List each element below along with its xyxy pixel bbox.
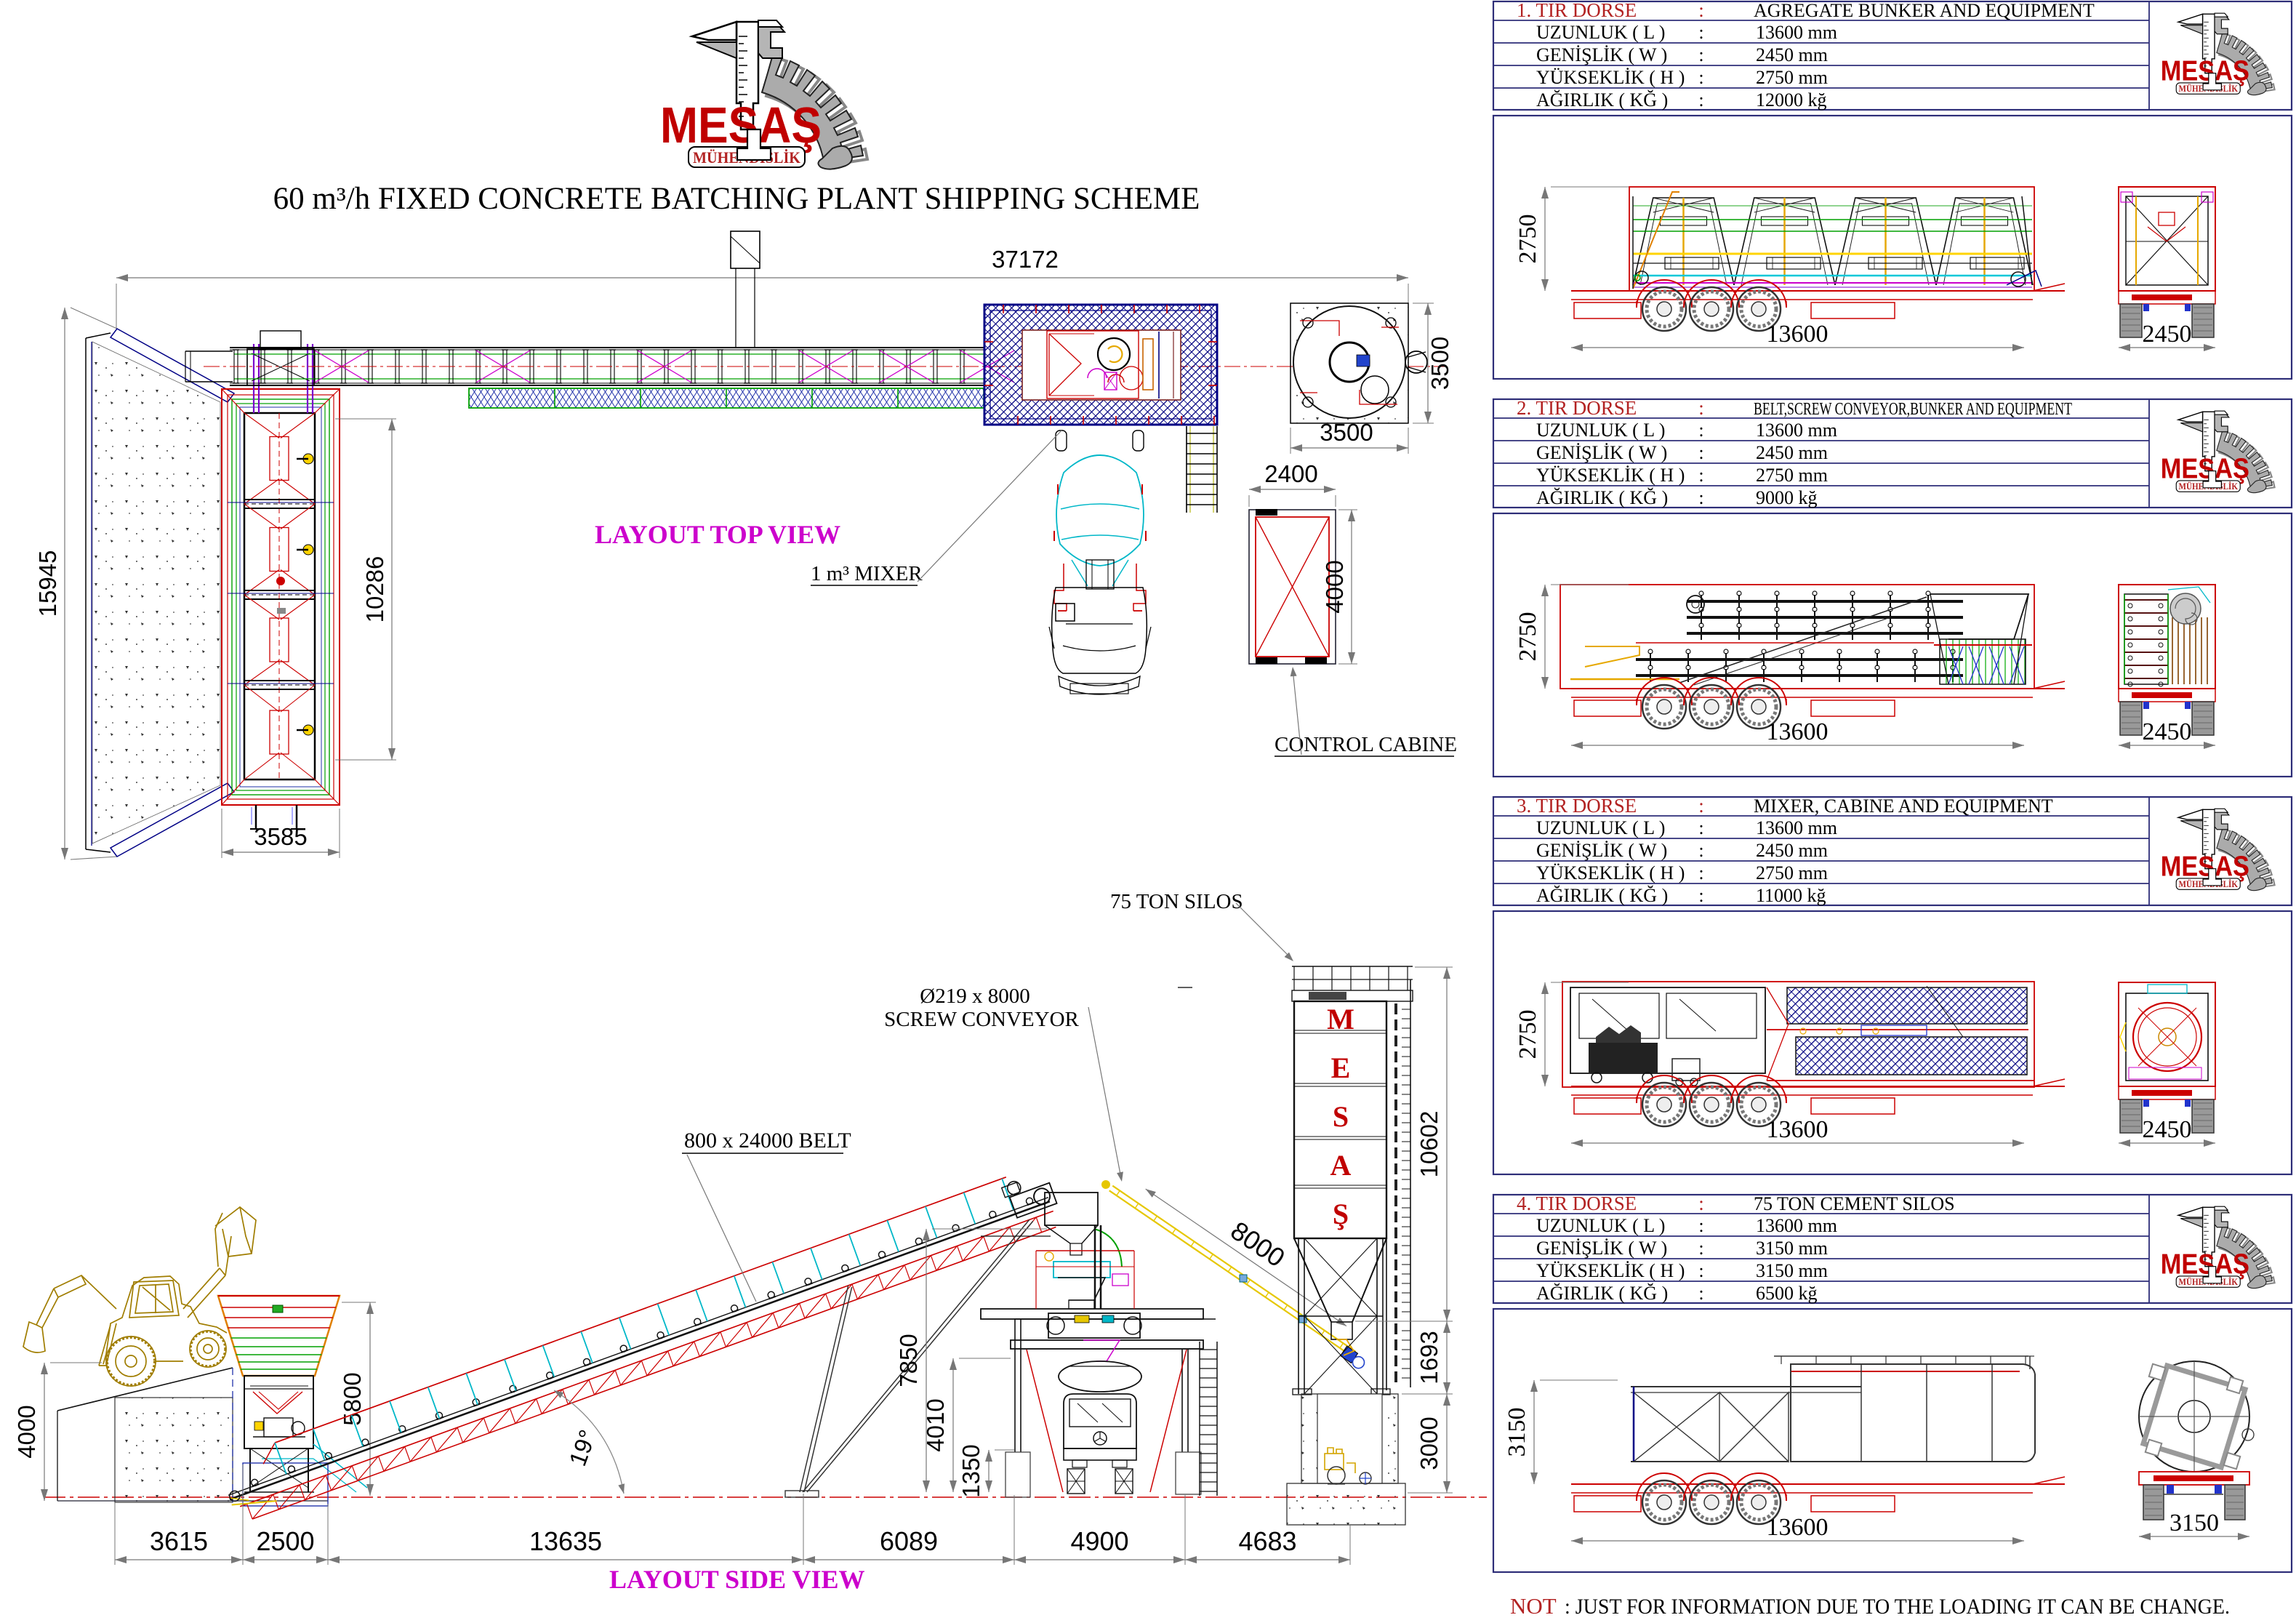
svg-text:7850: 7850 <box>895 1334 922 1387</box>
svg-text:2450 mm: 2450 mm <box>1756 840 1828 861</box>
svg-text:2500: 2500 <box>256 1526 314 1556</box>
svg-text:UZUNLUK ( L ): UZUNLUK ( L ) <box>1536 1215 1665 1236</box>
svg-text:AĞIRLIK ( KĞ ): AĞIRLIK ( KĞ ) <box>1536 89 1668 111</box>
svg-text:MESAŞ: MESAŞ <box>2161 454 2249 485</box>
svg-text:GENİŞLİK ( W ): GENİŞLİK ( W ) <box>1536 840 1667 861</box>
svg-text:GENİŞLİK ( W ): GENİŞLİK ( W ) <box>1536 1238 1667 1259</box>
svg-text:Ş: Ş <box>1333 1198 1349 1230</box>
svg-text:10602: 10602 <box>1416 1111 1442 1178</box>
svg-text:A: A <box>1330 1149 1352 1182</box>
svg-text:13600 mm: 13600 mm <box>1756 1215 1837 1236</box>
svg-text:15945: 15945 <box>34 550 61 617</box>
svg-text:3. TIR DORSE: 3. TIR DORSE <box>1517 795 1637 817</box>
svg-text:75 TON CEMENT SILOS: 75 TON CEMENT SILOS <box>1754 1193 1955 1214</box>
svg-text:4000: 4000 <box>1321 560 1348 613</box>
svg-text:13600 mm: 13600 mm <box>1756 22 1837 43</box>
svg-text::: : <box>1698 862 1703 883</box>
svg-text:YÜKSEKLİK ( H ): YÜKSEKLİK ( H ) <box>1536 1260 1685 1281</box>
svg-text:13600 mm: 13600 mm <box>1756 817 1837 838</box>
svg-text:YÜKSEKLİK ( H ): YÜKSEKLİK ( H ) <box>1536 67 1685 88</box>
svg-text:4. TIR DORSE: 4. TIR DORSE <box>1517 1193 1637 1214</box>
svg-text:2450 mm: 2450 mm <box>1756 442 1828 463</box>
svg-text:2. TIR DORSE: 2. TIR DORSE <box>1517 397 1637 419</box>
svg-text:S: S <box>1333 1100 1349 1133</box>
svg-text:13600 mm: 13600 mm <box>1756 420 1837 441</box>
svg-text:3615: 3615 <box>150 1526 208 1556</box>
svg-text:4900: 4900 <box>1070 1526 1128 1556</box>
svg-text::: : <box>1698 442 1703 463</box>
svg-text:AĞIRLIK ( KĞ ): AĞIRLIK ( KĞ ) <box>1536 487 1668 508</box>
svg-text:YÜKSEKLİK ( H ): YÜKSEKLİK ( H ) <box>1536 465 1685 486</box>
svg-text:2750 mm: 2750 mm <box>1756 465 1828 486</box>
svg-text::: : <box>1698 1260 1703 1281</box>
svg-text:800 x 24000 BELT: 800 x 24000 BELT <box>684 1129 851 1153</box>
svg-text:AGREGATE BUNKER AND EQUIPMENT: AGREGATE BUNKER AND EQUIPMENT <box>1754 0 2095 21</box>
svg-text:13600: 13600 <box>1767 321 1829 348</box>
svg-text:2750: 2750 <box>1514 612 1541 662</box>
svg-text:13600: 13600 <box>1767 718 1829 745</box>
svg-text:3500: 3500 <box>1320 419 1373 446</box>
svg-text:4683: 4683 <box>1238 1526 1296 1556</box>
svg-text:YÜKSEKLİK ( H ): YÜKSEKLİK ( H ) <box>1536 862 1685 883</box>
svg-text:3000: 3000 <box>1416 1416 1442 1470</box>
svg-text:UZUNLUK ( L ): UZUNLUK ( L ) <box>1536 22 1665 43</box>
svg-text:13600: 13600 <box>1767 1514 1829 1541</box>
svg-text:13600: 13600 <box>1767 1116 1829 1143</box>
svg-text::: : <box>1698 817 1703 838</box>
svg-text:9000 kğ: 9000 kğ <box>1756 487 1818 508</box>
svg-text:4000: 4000 <box>13 1405 40 1458</box>
svg-text:NOT: NOT <box>1510 1593 1557 1619</box>
svg-text:3150: 3150 <box>2169 1510 2219 1536</box>
svg-text::: : <box>1698 0 1704 21</box>
svg-text::: : <box>1698 67 1703 88</box>
svg-text:2450: 2450 <box>2143 718 2192 745</box>
svg-text:6089: 6089 <box>880 1526 938 1556</box>
svg-text::: : <box>1698 1238 1703 1259</box>
svg-text:BELT,SCREW CONVEYOR,BUNKER AND: BELT,SCREW CONVEYOR,BUNKER AND EQUIPMENT <box>1754 400 2072 419</box>
svg-text:1350: 1350 <box>958 1444 984 1497</box>
svg-text:2750 mm: 2750 mm <box>1756 862 1828 883</box>
svg-text:LAYOUT TOP VIEW: LAYOUT TOP VIEW <box>595 520 840 549</box>
svg-text::: : <box>1698 487 1703 508</box>
svg-text::: : <box>1698 420 1703 441</box>
svg-text::: : <box>1698 44 1703 65</box>
svg-text:UZUNLUK ( L ): UZUNLUK ( L ) <box>1536 420 1665 441</box>
svg-text::: : <box>1698 1193 1704 1214</box>
svg-text:2450: 2450 <box>2143 1116 2192 1143</box>
svg-text:11000 kğ: 11000 kğ <box>1756 885 1826 906</box>
svg-text:3150: 3150 <box>1504 1408 1530 1457</box>
svg-text:2450 mm: 2450 mm <box>1756 44 1828 65</box>
svg-text::: : <box>1698 885 1703 906</box>
svg-text:: JUST FOR INFORMATION DUE TO: : JUST FOR INFORMATION DUE TO THE LOADIN… <box>1565 1595 2230 1619</box>
svg-text::: : <box>1698 22 1703 43</box>
svg-text::: : <box>1698 840 1703 861</box>
svg-text:1693: 1693 <box>1416 1331 1442 1384</box>
svg-text:LAYOUT SIDE VIEW: LAYOUT SIDE VIEW <box>609 1565 864 1594</box>
svg-text:4010: 4010 <box>922 1398 949 1451</box>
svg-text:Ø219 x 8000: Ø219 x 8000 <box>920 985 1029 1008</box>
svg-text:3150 mm: 3150 mm <box>1756 1260 1828 1281</box>
svg-text::: : <box>1698 1215 1703 1236</box>
svg-text:1. TIR DORSE: 1. TIR DORSE <box>1517 0 1637 21</box>
svg-text:37172: 37172 <box>992 246 1059 273</box>
svg-text:6500 kğ: 6500 kğ <box>1756 1283 1818 1304</box>
svg-text:GENİŞLİK ( W ): GENİŞLİK ( W ) <box>1536 442 1667 463</box>
svg-text:GENİŞLİK ( W ): GENİŞLİK ( W ) <box>1536 44 1667 65</box>
svg-text:3500: 3500 <box>1426 337 1453 390</box>
svg-text:AĞIRLIK ( KĞ ): AĞIRLIK ( KĞ ) <box>1536 1283 1668 1304</box>
svg-text::: : <box>1698 89 1703 111</box>
svg-text:12000 kğ: 12000 kğ <box>1756 89 1827 111</box>
svg-text::: : <box>1698 1283 1703 1304</box>
svg-text:SCREW CONVEYOR: SCREW CONVEYOR <box>884 1008 1079 1031</box>
svg-text:CONTROL CABINE: CONTROL CABINE <box>1275 733 1457 756</box>
svg-text:3585: 3585 <box>254 823 307 850</box>
svg-text:MESAŞ: MESAŞ <box>660 97 822 153</box>
svg-text:75 TON SILOS: 75 TON SILOS <box>1110 890 1243 913</box>
svg-text:10286: 10286 <box>361 556 388 623</box>
svg-text::: : <box>1698 465 1703 486</box>
svg-text:2450: 2450 <box>2143 321 2192 348</box>
svg-text::: : <box>1698 397 1704 419</box>
svg-text:3150 mm: 3150 mm <box>1756 1238 1828 1259</box>
svg-text:2400: 2400 <box>1264 460 1317 487</box>
svg-text:2750 mm: 2750 mm <box>1756 67 1828 88</box>
svg-text:1 m³ MIXER: 1 m³ MIXER <box>811 562 923 585</box>
svg-text:2750: 2750 <box>1514 215 1541 264</box>
svg-text:M: M <box>1327 1003 1354 1035</box>
svg-text:60 m³/h FIXED CONCRETE BATCHIN: 60 m³/h FIXED CONCRETE BATCHING PLANT SH… <box>273 182 1200 216</box>
svg-text:UZUNLUK ( L ): UZUNLUK ( L ) <box>1536 817 1665 838</box>
svg-text:E: E <box>1331 1051 1351 1084</box>
svg-text:MESAŞ: MESAŞ <box>2161 1249 2249 1281</box>
svg-text:MESAŞ: MESAŞ <box>2161 56 2249 87</box>
svg-text::: : <box>1698 795 1704 817</box>
svg-text:MESAŞ: MESAŞ <box>2161 851 2249 883</box>
svg-text:MIXER, CABINE AND EQUIPMENT: MIXER, CABINE AND EQUIPMENT <box>1754 796 2053 817</box>
svg-text:2750: 2750 <box>1514 1010 1541 1059</box>
svg-text:13635: 13635 <box>529 1526 602 1556</box>
svg-text:AĞIRLIK ( KĞ ): AĞIRLIK ( KĞ ) <box>1536 885 1668 906</box>
